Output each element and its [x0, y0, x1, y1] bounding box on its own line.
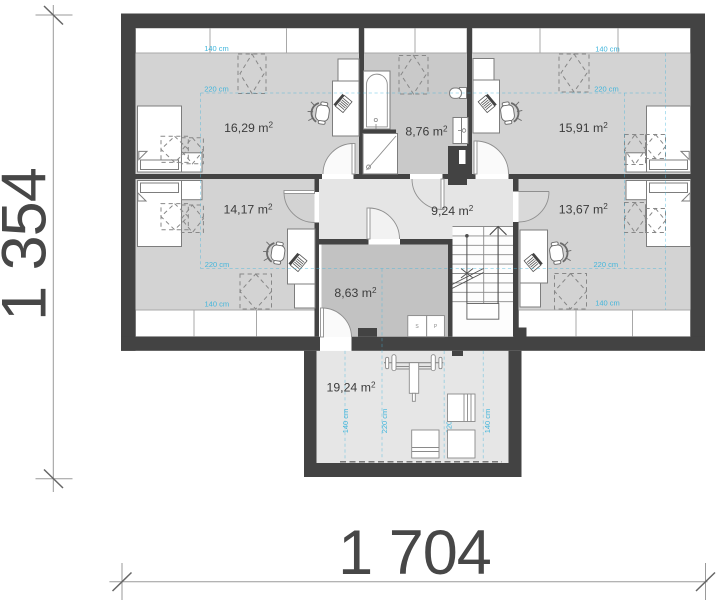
svg-text:140 cm: 140 cm [483, 409, 492, 434]
svg-text:13,67 m2: 13,67 m2 [559, 202, 608, 216]
svg-text:140 cm: 140 cm [595, 45, 620, 54]
svg-text:220 cm: 220 cm [205, 260, 230, 269]
svg-text:15,91 m2: 15,91 m2 [559, 121, 608, 135]
svg-text:140 cm: 140 cm [204, 300, 229, 309]
svg-text:220 cm: 220 cm [594, 85, 619, 94]
svg-text:8,63 m2: 8,63 m2 [334, 286, 377, 300]
svg-text:140 cm: 140 cm [595, 299, 620, 308]
svg-text:9,24 m2: 9,24 m2 [431, 204, 474, 218]
svg-text:19,24 m2: 19,24 m2 [327, 380, 376, 394]
svg-text:1 704: 1 704 [338, 518, 491, 588]
svg-text:14,17 m2: 14,17 m2 [224, 202, 273, 216]
svg-text:220 cm: 220 cm [380, 409, 389, 434]
svg-text:8,76 m2: 8,76 m2 [405, 125, 448, 139]
svg-text:1 354: 1 354 [0, 168, 60, 321]
svg-text:16,29 m2: 16,29 m2 [224, 121, 273, 135]
svg-text:220 cm: 220 cm [593, 260, 618, 269]
svg-text:140 cm: 140 cm [204, 44, 229, 53]
svg-text:220 cm: 220 cm [204, 85, 229, 94]
